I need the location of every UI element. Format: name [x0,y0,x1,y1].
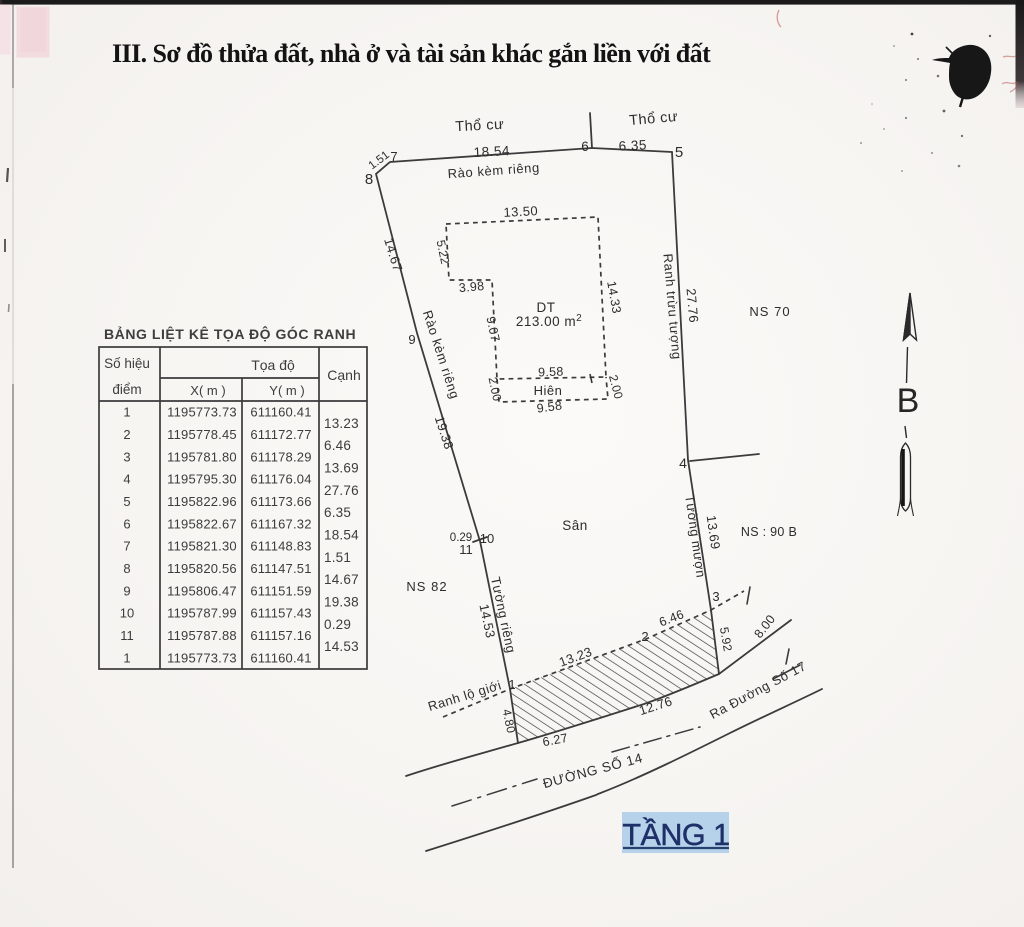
svg-text:3.98: 3.98 [458,279,485,295]
svg-text:Sân: Sân [562,518,588,533]
svg-text:8: 8 [365,171,373,188]
svg-text:1: 1 [123,405,130,420]
svg-text:611178.29: 611178.29 [250,449,311,464]
svg-text:611176.04: 611176.04 [250,472,311,487]
svg-text:3: 3 [123,449,130,464]
svg-text:Thổ cư: Thổ cư [455,117,505,136]
svg-text:6: 6 [123,516,130,531]
svg-text:1195787.88: 1195787.88 [167,628,237,643]
svg-text:6.27: 6.27 [542,731,570,749]
svg-text:18.54: 18.54 [473,143,510,160]
svg-text:Ranh lộ giới: Ranh lộ giới [426,677,503,714]
svg-text:Tường mượn: Tường mượn [682,494,708,579]
svg-text:5: 5 [123,494,130,509]
svg-text:Y( m ): Y( m ) [269,383,304,398]
svg-text:Tọa độ: Tọa độ [251,357,295,373]
svg-text:9: 9 [123,583,130,598]
svg-text:2: 2 [123,427,130,442]
svg-text:NS 70: NS 70 [749,304,790,319]
svg-text:9.58: 9.58 [538,365,564,380]
svg-text:27.76: 27.76 [324,483,359,498]
svg-text:B: B [897,382,920,420]
svg-text:5.22: 5.22 [434,239,453,266]
svg-text:611147.51: 611147.51 [250,561,311,576]
svg-text:10: 10 [480,531,494,546]
svg-text:4: 4 [679,455,687,471]
svg-text:Rào kèm riêng: Rào kèm riêng [447,160,540,181]
svg-text:1195781.80: 1195781.80 [167,449,237,464]
svg-text:1195773.73: 1195773.73 [167,650,237,665]
svg-text:0.29: 0.29 [324,617,351,632]
svg-text:Ra Đường Số 17: Ra Đường Số 17 [707,658,809,722]
svg-text:7: 7 [390,149,397,164]
svg-text:213.00 m2: 213.00 m2 [516,313,582,329]
svg-text:2.00: 2.00 [606,373,626,400]
svg-text:14.53: 14.53 [324,639,359,654]
svg-text:NS : 90 B: NS : 90 B [741,525,797,539]
svg-text:611167.32: 611167.32 [250,516,311,531]
svg-text:14.67: 14.67 [324,572,359,587]
svg-text:Ranh trừu tượng: Ranh trừu tượng [660,253,684,360]
svg-text:1.51: 1.51 [324,550,351,565]
svg-text:19.38: 19.38 [324,595,359,610]
svg-text:18.54: 18.54 [324,528,359,543]
svg-text:điểm: điểm [112,382,141,397]
svg-text:6: 6 [581,139,589,154]
svg-text:9.58: 9.58 [536,398,563,415]
svg-text:9: 9 [408,332,415,347]
svg-text:19.38: 19.38 [432,414,457,451]
svg-text:1.51: 1.51 [367,149,392,172]
svg-text:611151.59: 611151.59 [250,583,311,598]
svg-text:611157.43: 611157.43 [250,606,311,621]
svg-text:6.46: 6.46 [324,438,351,453]
svg-text:11: 11 [459,542,473,557]
svg-text:1: 1 [123,650,130,665]
svg-text:13.23: 13.23 [324,416,359,431]
svg-text:2: 2 [641,629,648,644]
svg-text:1195787.99: 1195787.99 [167,606,237,621]
svg-text:Số hiệu: Số hiệu [104,356,150,371]
svg-text:14.33: 14.33 [604,280,623,315]
svg-text:1195778.45: 1195778.45 [167,427,237,442]
svg-text:611160.41: 611160.41 [250,405,311,420]
svg-text:BẢNG LIỆT KÊ TỌA ĐỘ GÓC RANH: BẢNG LIỆT KÊ TỌA ĐỘ GÓC RANH [104,325,356,342]
svg-text:611148.83: 611148.83 [250,539,311,554]
svg-text:ĐƯỜNG SỐ 14: ĐƯỜNG SỐ 14 [541,750,644,791]
svg-text:8.00: 8.00 [751,612,778,641]
svg-text:10: 10 [120,606,134,621]
svg-text:611172.77: 611172.77 [250,427,311,442]
svg-text:611173.66: 611173.66 [250,494,311,509]
svg-text:1195822.67: 1195822.67 [167,516,237,531]
svg-text:3: 3 [712,589,719,604]
svg-text:13.69: 13.69 [704,514,724,550]
svg-text:611160.41: 611160.41 [250,650,311,665]
svg-text:Rào kèm riêng: Rào kèm riêng [420,308,463,400]
svg-text:6.35: 6.35 [618,137,647,153]
svg-text:9.07: 9.07 [483,315,502,343]
svg-text:TẦNG 1: TẦNG 1 [622,817,729,852]
svg-text:X( m ): X( m ) [190,383,225,398]
svg-text:1195822.96: 1195822.96 [167,494,237,509]
svg-text:5: 5 [675,144,683,161]
svg-text:III. Sơ đồ thửa đất, nhà ở và: III. Sơ đồ thửa đất, nhà ở và tài sản kh… [112,39,711,68]
svg-text:4: 4 [123,472,130,487]
svg-text:611157.16: 611157.16 [250,628,311,643]
svg-text:1195821.30: 1195821.30 [167,539,237,554]
svg-text:13.69: 13.69 [324,461,359,476]
svg-text:1: 1 [508,677,515,692]
svg-text:7: 7 [123,539,130,554]
svg-text:NS 82: NS 82 [406,579,447,594]
svg-text:1195795.30: 1195795.30 [167,472,237,487]
svg-text:1195806.47: 1195806.47 [167,583,237,598]
svg-text:DT: DT [537,300,556,315]
svg-text:1195773.73: 1195773.73 [167,405,237,420]
svg-text:27.76: 27.76 [684,288,702,324]
svg-text:5.92: 5.92 [717,626,735,653]
svg-text:13.50: 13.50 [503,203,538,220]
svg-text:8: 8 [123,561,130,576]
svg-text:Hiên: Hiên [534,383,563,398]
svg-text:14.67: 14.67 [381,236,405,273]
svg-text:11: 11 [120,628,134,643]
svg-text:Thổ cư: Thổ cư [629,109,679,129]
svg-text:6.35: 6.35 [324,505,351,520]
svg-text:1195820.56: 1195820.56 [167,561,237,576]
svg-text:Cạnh: Cạnh [327,367,360,383]
